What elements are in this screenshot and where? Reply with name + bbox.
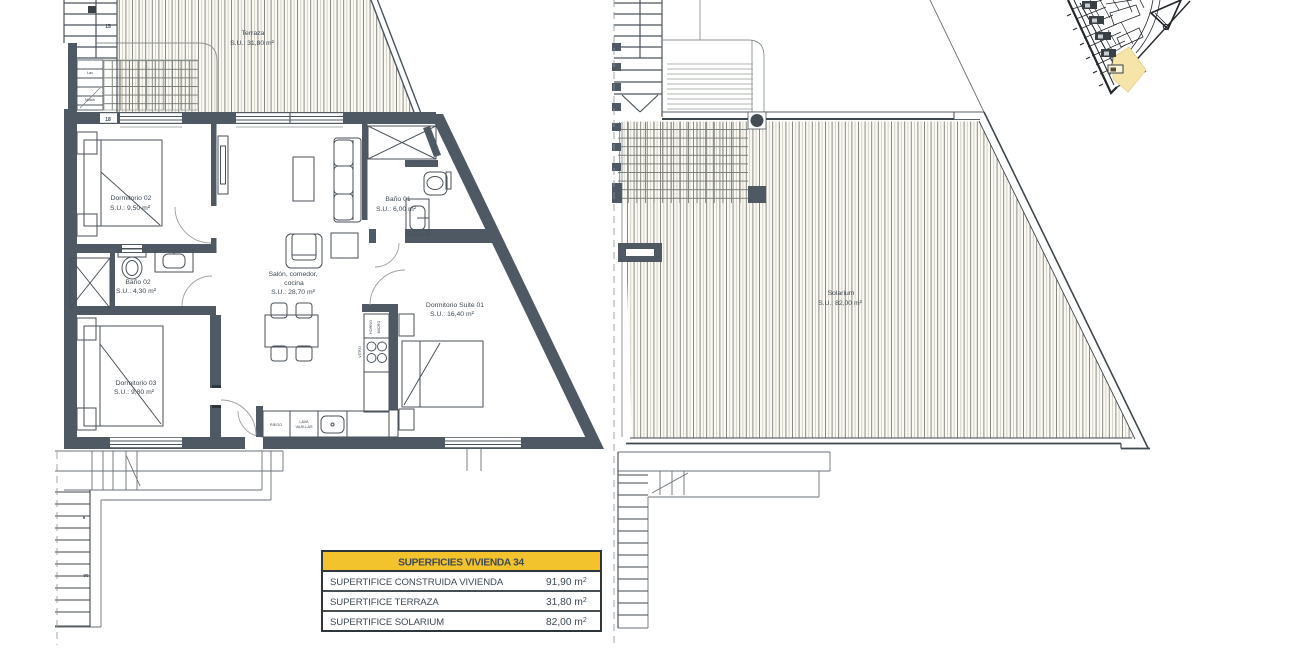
svg-text:Lav: Lav [87, 70, 93, 75]
svg-text:Baño 02: Baño 02 [125, 279, 151, 286]
svg-text:SUPERTIFICE TERRAZA: SUPERTIFICE TERRAZA [330, 597, 439, 608]
svg-text:Dormitorio 02: Dormitorio 02 [111, 195, 152, 202]
svg-text:Salón, comedor,: Salón, comedor, [268, 271, 317, 278]
svg-text:Dormitorio 03: Dormitorio 03 [116, 380, 157, 387]
svg-text:cocina: cocina [284, 280, 304, 287]
svg-text:S.U.: 31,80 m²: S.U.: 31,80 m² [230, 40, 275, 47]
svg-text:SUPERTIFICE CONSTRUIDA VIVIEND: SUPERTIFICE CONSTRUIDA VIVIENDA [330, 577, 504, 588]
svg-text:S.U.: 28,70 m²: S.U.: 28,70 m² [271, 289, 316, 296]
svg-text:Solarium: Solarium [828, 290, 855, 297]
svg-text:RIEGO: RIEGO [270, 423, 282, 427]
svg-text:S.U.: 9,80 m²: S.U.: 9,80 m² [114, 389, 155, 396]
svg-text:Macb: Macb [85, 97, 96, 102]
svg-text:18: 18 [105, 117, 111, 123]
svg-text:15: 15 [105, 24, 111, 30]
svg-text:S.U.: 9,50 m²: S.U.: 9,50 m² [110, 205, 151, 212]
svg-text:SUPERTIFICE SOLARIUM: SUPERTIFICE SOLARIUM [330, 617, 444, 628]
svg-text:VITRO: VITRO [358, 346, 362, 358]
svg-text:SUPERFICIES VIVIENDA 34: SUPERFICIES VIVIENDA 34 [398, 558, 524, 569]
svg-text:LAVA: LAVA [299, 420, 309, 424]
svg-text:VAJILLAS: VAJILLAS [295, 425, 312, 429]
svg-text:MICRO: MICRO [377, 321, 381, 334]
svg-text:Terraza: Terraza [242, 30, 265, 37]
svg-text:82,00 m2: 82,00 m2 [546, 617, 587, 628]
svg-text:Dormitorio Suite 01: Dormitorio Suite 01 [426, 302, 484, 309]
svg-text:S.U.: 16,40 m²: S.U.: 16,40 m² [430, 311, 475, 318]
svg-text:91,90 m2: 91,90 m2 [546, 577, 587, 588]
svg-text:Baño 01: Baño 01 [385, 196, 411, 203]
svg-text:S.U.; 82,00 m²: S.U.; 82,00 m² [818, 300, 863, 307]
svg-text:S.U.: 4,30 m²: S.U.: 4,30 m² [116, 288, 157, 295]
svg-text:31,80 m2: 31,80 m2 [546, 597, 587, 608]
svg-text:HORNO: HORNO [369, 320, 373, 334]
svg-text:S.U.: 6,00 m²: S.U.: 6,00 m² [376, 206, 417, 213]
svg-text:90: 90 [83, 573, 89, 578]
